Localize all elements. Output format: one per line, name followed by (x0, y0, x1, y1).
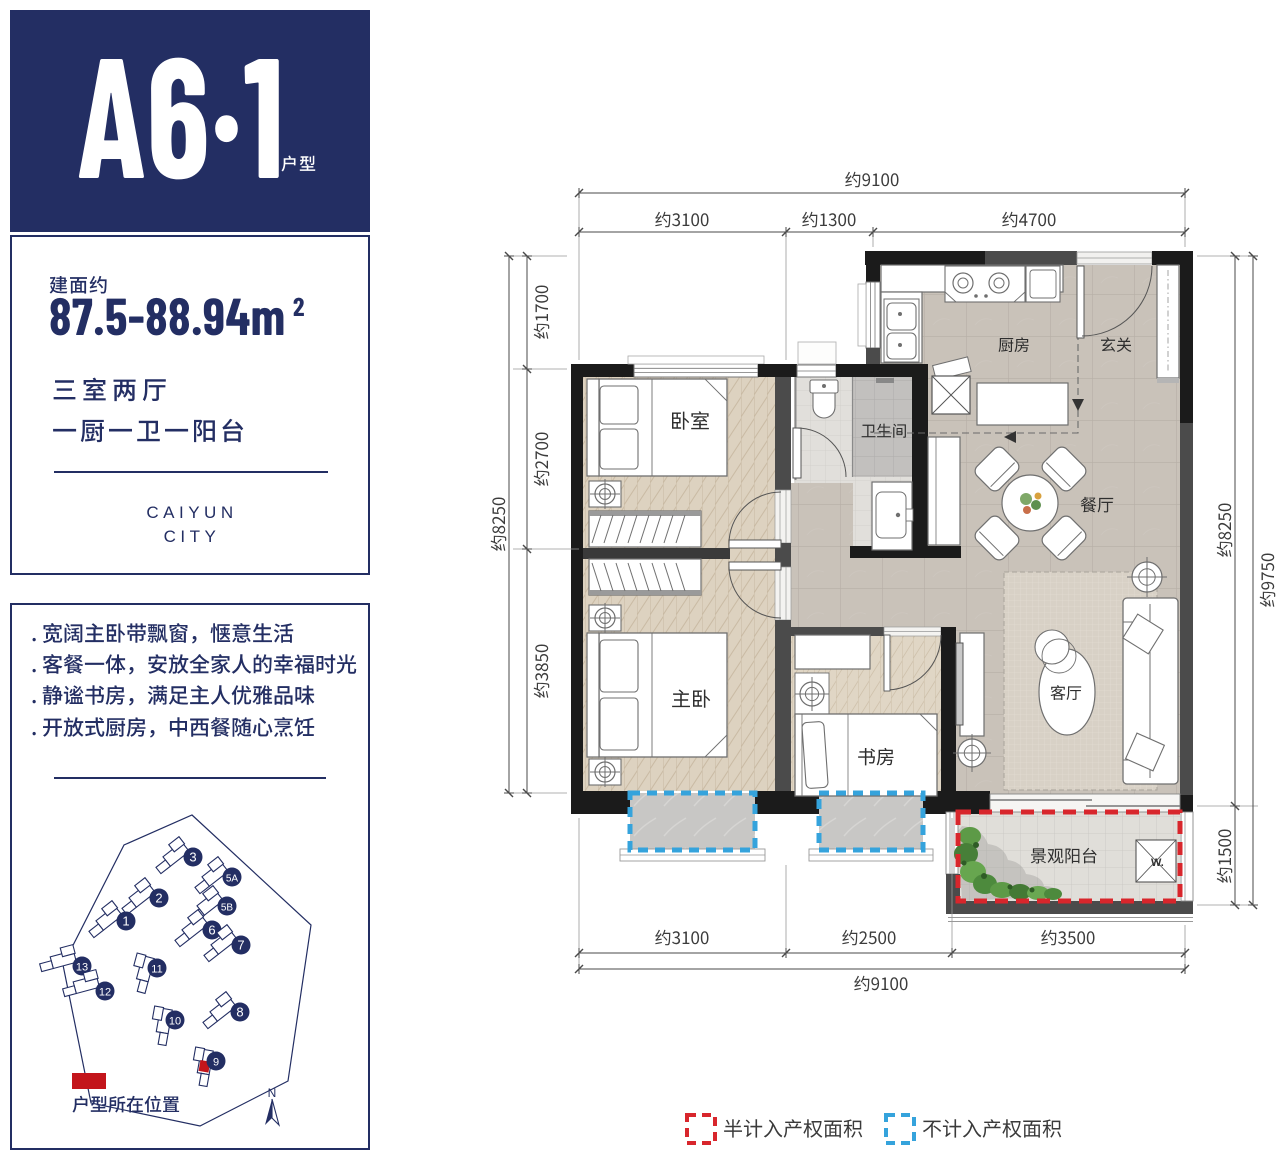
svg-text:6: 6 (208, 923, 215, 938)
svg-text:CAIYUN: CAIYUN (146, 503, 237, 522)
svg-text:2: 2 (155, 891, 162, 906)
svg-text:W.: W. (1151, 857, 1164, 869)
svg-text:9: 9 (213, 1057, 219, 1069)
svg-text:11: 11 (151, 964, 162, 976)
svg-text:3: 3 (189, 850, 196, 865)
svg-text:8: 8 (236, 1005, 243, 1020)
svg-text:N: N (268, 1086, 277, 1100)
svg-text:5A: 5A (226, 874, 239, 885)
svg-text:1: 1 (122, 914, 129, 929)
svg-text:12: 12 (99, 987, 111, 999)
svg-text:CITY: CITY (164, 527, 221, 546)
svg-text:10: 10 (169, 1016, 181, 1028)
svg-text:7: 7 (237, 938, 244, 953)
svg-text:5B: 5B (221, 903, 234, 914)
